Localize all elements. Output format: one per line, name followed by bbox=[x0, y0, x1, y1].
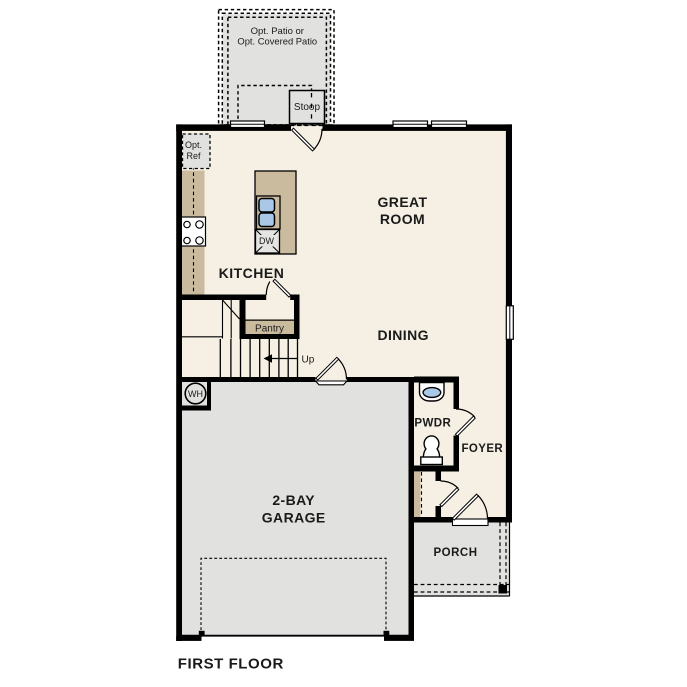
svg-text:Ref: Ref bbox=[186, 151, 201, 161]
svg-text:KITCHEN: KITCHEN bbox=[219, 265, 285, 281]
svg-text:GREAT: GREAT bbox=[378, 194, 428, 210]
svg-text:2-BAY: 2-BAY bbox=[272, 492, 315, 508]
svg-text:PWDR: PWDR bbox=[414, 418, 451, 430]
svg-text:PORCH: PORCH bbox=[433, 547, 477, 559]
svg-text:Up: Up bbox=[302, 355, 315, 366]
svg-text:DINING: DINING bbox=[377, 327, 428, 343]
svg-text:Opt. Covered Patio: Opt. Covered Patio bbox=[237, 35, 317, 46]
svg-text:Stoop: Stoop bbox=[294, 102, 321, 113]
svg-text:FOYER: FOYER bbox=[461, 443, 503, 455]
svg-text:ROOM: ROOM bbox=[380, 211, 425, 227]
svg-text:DW: DW bbox=[259, 236, 274, 246]
svg-text:Opt.: Opt. bbox=[185, 140, 202, 150]
svg-text:WH: WH bbox=[188, 389, 203, 399]
svg-text:Pantry: Pantry bbox=[255, 324, 284, 335]
svg-text:FIRST FLOOR: FIRST FLOOR bbox=[178, 655, 284, 672]
svg-text:GARAGE: GARAGE bbox=[262, 509, 326, 525]
